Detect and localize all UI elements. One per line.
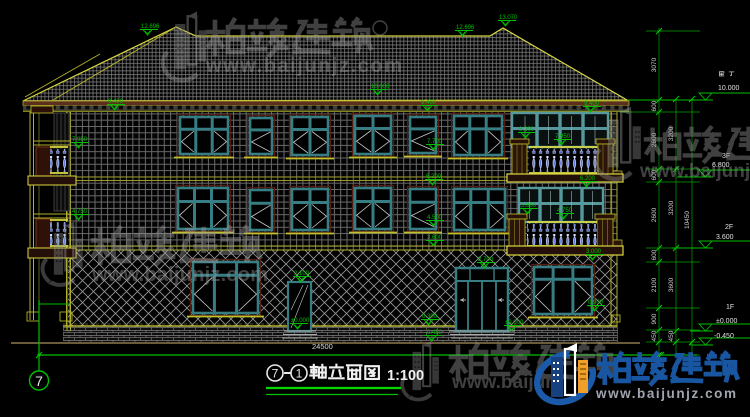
svg-text:450: 450 [668, 330, 675, 341]
svg-text:600: 600 [651, 249, 658, 260]
svg-text:1: 1 [296, 367, 303, 381]
svg-text:2F: 2F [725, 224, 733, 231]
svg-text:www.baijunjz.com: www.baijunjz.com [91, 264, 268, 286]
svg-text:1:100: 1:100 [387, 368, 424, 384]
svg-text:1F: 1F [726, 304, 734, 311]
svg-text:3.600: 3.600 [716, 234, 734, 241]
svg-text:2100: 2100 [651, 277, 658, 292]
svg-text:10.000: 10.000 [718, 85, 740, 92]
svg-text:7: 7 [272, 367, 279, 381]
svg-text:3600: 3600 [668, 277, 675, 292]
svg-text:24500: 24500 [312, 342, 333, 351]
svg-text:www.baijunjz.com: www.baijunjz.com [205, 55, 402, 77]
svg-text:-0.450: -0.450 [714, 333, 734, 340]
svg-text:10450: 10450 [684, 211, 691, 229]
svg-text:2600: 2600 [651, 207, 658, 222]
svg-text:3200: 3200 [668, 200, 675, 215]
svg-text:±0.000: ±0.000 [716, 318, 737, 325]
svg-text:900: 900 [651, 313, 658, 324]
svg-text:www.baijunjz.com: www.baijunjz.com [639, 161, 750, 182]
svg-text:3070: 3070 [651, 57, 658, 72]
svg-text:7: 7 [35, 373, 43, 389]
